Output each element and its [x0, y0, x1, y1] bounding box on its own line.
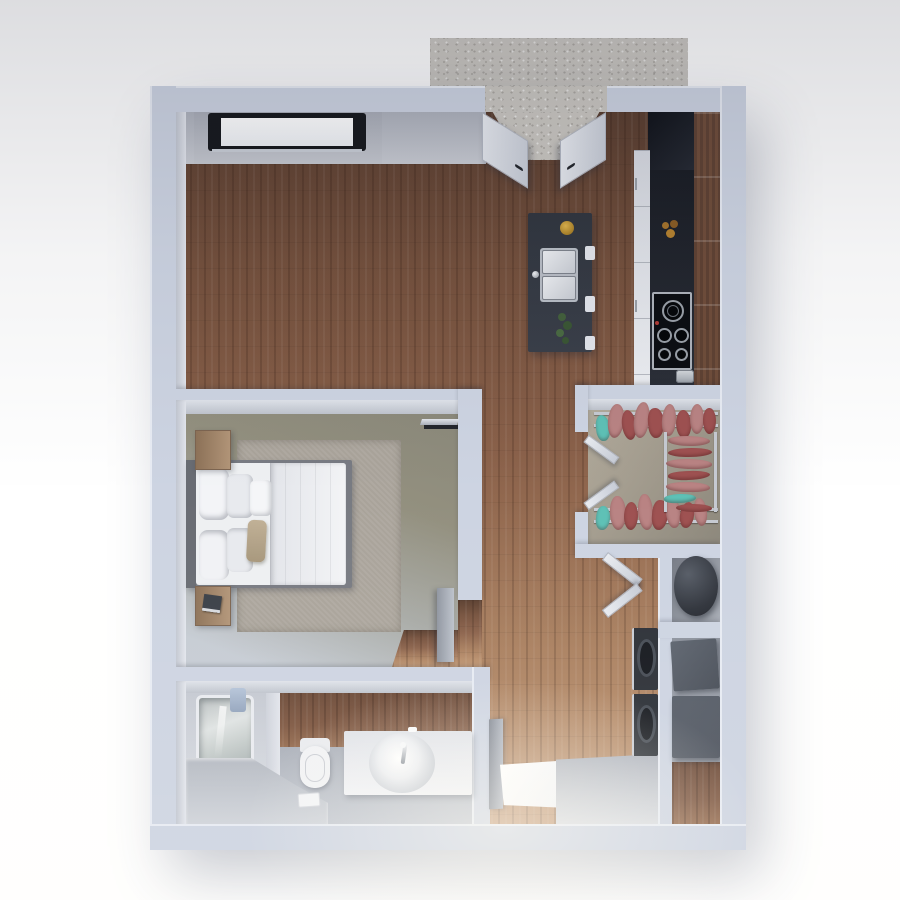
- stool-seat: [585, 336, 595, 350]
- toaster: [676, 370, 694, 383]
- duvet: [270, 463, 346, 585]
- stool-seat: [585, 246, 595, 260]
- stool-seat: [585, 296, 595, 312]
- toilet: [298, 738, 332, 790]
- faucet-sparkle-icon: [400, 742, 406, 748]
- knob-red-icon: [655, 321, 659, 325]
- bedroom-top-wall: [176, 389, 482, 400]
- closet-rail-right: [714, 432, 717, 512]
- outer-wall-left: [150, 86, 176, 850]
- burner-large-icon: [662, 300, 684, 322]
- leaf-icon: [562, 337, 569, 344]
- window-glass: [221, 118, 353, 146]
- flower-icon: [662, 222, 669, 229]
- burner-medium-icon: [674, 328, 689, 343]
- utility-wood-floor: [672, 762, 720, 824]
- burner-medium-icon: [657, 328, 672, 343]
- cooktop: [652, 292, 692, 370]
- bath-mat: [298, 792, 321, 808]
- left-wall-inner-face: [176, 112, 186, 824]
- sink-basin: [542, 276, 576, 300]
- leaf-icon: [563, 321, 572, 330]
- nightstand-top: [195, 430, 231, 470]
- beige-lumbar-pillow: [246, 520, 267, 563]
- sink-basin: [542, 250, 576, 274]
- leaf-icon: [558, 313, 566, 321]
- kitchen-wood-upper-cabinets: [694, 112, 720, 388]
- outer-wall-top: [150, 86, 746, 112]
- utility-mid-wall: [658, 622, 720, 638]
- closet-top-wall: [575, 385, 720, 399]
- bedroom-right-wall: [458, 389, 482, 600]
- kitchen-island: [528, 213, 592, 352]
- dryer-door-icon: [637, 705, 656, 743]
- window-sill-icon: [212, 149, 362, 152]
- book-stack-icon: [202, 594, 222, 613]
- yellow-dish-icon: [560, 221, 574, 235]
- leaf-icon: [556, 329, 564, 337]
- island-double-sink: [540, 248, 578, 302]
- island-faucet-icon: [532, 271, 539, 278]
- door-handle-icon: [567, 162, 575, 170]
- bedroom-doorway-floor: [458, 600, 482, 667]
- sliding-door-panel: [437, 588, 454, 662]
- washer: [632, 628, 658, 690]
- door-handle-icon: [515, 164, 523, 172]
- storage-box-large: [672, 696, 720, 758]
- wall-mounted-tv: [424, 425, 458, 429]
- glass-streak-icon: [214, 706, 226, 758]
- flower-icon: [670, 220, 678, 228]
- patio-concrete-slab: [430, 38, 688, 88]
- toilet-seat-line-icon: [305, 754, 325, 782]
- outer-wall-right: [720, 86, 746, 850]
- entry-doorway-opening: [485, 86, 607, 112]
- storage-box-small: [670, 638, 719, 691]
- headboard: [186, 460, 196, 588]
- cabinet-handle-icon: [635, 300, 637, 312]
- bathroom-door-edge: [489, 719, 503, 810]
- island-plant-icon: [554, 311, 576, 351]
- closet-left-wall-upper: [575, 385, 588, 432]
- outer-wall-bottom: [150, 824, 746, 850]
- bathroom-right-wall: [472, 667, 490, 824]
- pillow: [199, 530, 229, 580]
- fridge-handle-icon: [635, 178, 637, 190]
- dryer: [632, 694, 658, 756]
- bathroom-top-wall: [176, 667, 490, 681]
- pillow: [199, 468, 229, 520]
- bedroom-top-wall-face: [186, 400, 458, 414]
- water-heater: [674, 556, 718, 616]
- pillow-small: [250, 480, 272, 516]
- burner-small-icon: [675, 348, 688, 361]
- washer-door-icon: [637, 639, 656, 677]
- entry-landing: [556, 754, 658, 824]
- utility-divider-wall: [658, 558, 672, 824]
- bathroom-top-wall-face: [186, 681, 472, 693]
- soap-icon: [408, 727, 417, 732]
- flower-icon: [666, 229, 675, 238]
- burner-small-icon: [658, 348, 671, 361]
- blue-towel: [230, 688, 246, 712]
- kitchen-tall-black-unit: [648, 112, 694, 170]
- floorplan-canvas: [0, 0, 900, 900]
- flower-jar: [660, 220, 680, 240]
